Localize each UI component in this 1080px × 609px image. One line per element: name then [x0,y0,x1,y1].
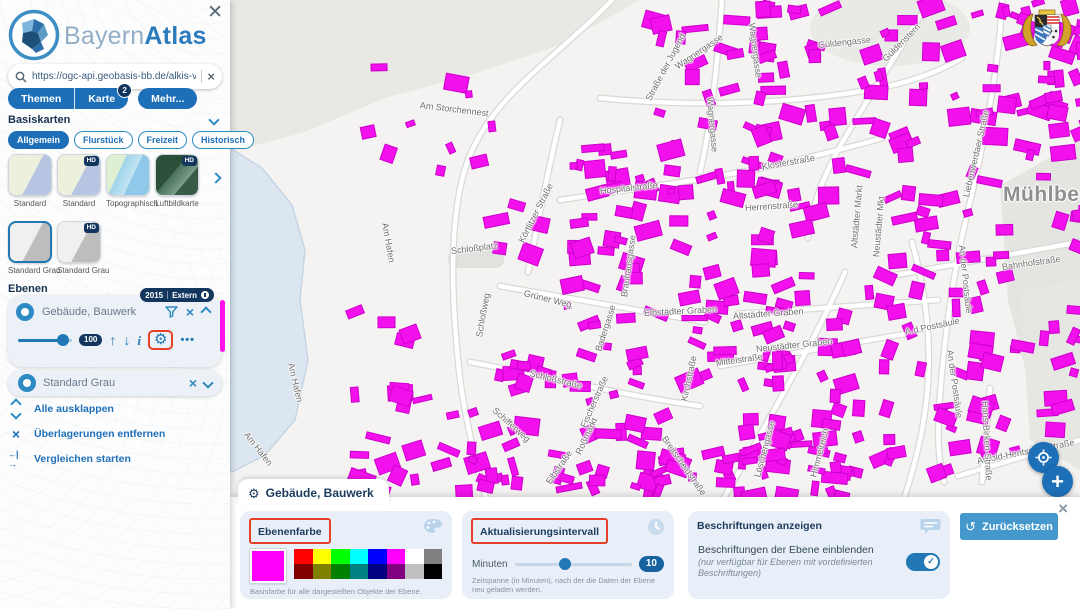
color-swatch[interactable] [294,564,313,579]
intervall-highlight: Aktualisierungsintervall [471,518,608,544]
labels-note: (nur verfügbar für Ebenen mit vordefinie… [698,557,898,580]
labels-text: Beschriftungen der Ebene einblenden [698,544,898,556]
color-swatch[interactable] [350,564,369,579]
layer-settings-gear-icon[interactable]: ⚙ [154,331,167,348]
layer-visibility-icon[interactable] [16,303,34,321]
color-swatch-area [240,544,452,583]
settings-panel-tab[interactable]: ⚙ Gebäude, Bauwerk [238,479,389,504]
basemap-label: Standard [57,199,101,208]
labels-card: Beschriftungen anzeigen Beschriftungen d… [688,511,950,599]
zoom-in-button[interactable]: + [1042,466,1073,497]
compare-icon: ←|→ [8,449,24,469]
layer-name: Standard Grau [43,377,182,389]
color-swatch[interactable] [424,549,443,564]
chip-allgemein[interactable]: Allgemein [8,131,69,149]
remove-icon: × [8,426,24,442]
unfold-icon [8,400,24,418]
interval-slider-handle[interactable] [559,558,571,570]
remove-overlays-link[interactable]: × Überlagerungen entfernen [8,424,165,444]
interval-unit-label: Minuten [472,559,508,570]
toggle-check-icon: ✓ [924,555,938,569]
settings-gear-icon: ⚙ [248,487,260,500]
opacity-value-badge: 100 [79,334,102,346]
interval-caption: Zeitspanne (in Minuten), nach der die Da… [462,572,674,595]
geolocate-icon [1035,449,1052,466]
hd-badge: HD [84,223,99,233]
speech-bubble-icon [920,518,941,535]
search-clear-icon[interactable]: × [207,70,215,83]
palette-icon [423,518,443,534]
layer-collapse-icon[interactable] [200,306,211,317]
basiskarten-heading: Basiskarten [8,114,70,126]
basemap-standard-grau-preview [8,221,52,263]
search-divider [201,70,202,83]
layer-expand-icon[interactable] [202,377,213,388]
reset-label: Zurücksetzen [982,521,1053,533]
search-input[interactable]: https://ogc-api.geobasis-bb.de/alkis-ver… [32,71,196,82]
settings-tab-title: Gebäude, Bauwerk [266,486,374,500]
color-swatch[interactable] [405,549,424,564]
color-swatch[interactable] [331,549,350,564]
clock-icon [647,518,665,536]
layer-color-strip [220,300,225,352]
basemap-standard-hd[interactable]: HD Standard [57,154,101,208]
move-layer-up-icon[interactable]: ↑ [109,333,116,347]
basemap-topographisch-preview [106,154,150,196]
layer-card-gebaeude: 2015 Extern Gebäude, Bauwerk × 100 ↑ ↓ i… [8,295,222,367]
settings-close-icon[interactable]: × [1058,500,1068,517]
layer-name: Gebäude, Bauwerk [42,306,157,318]
intervall-title: Aktualisierungsintervall [480,526,599,538]
chip-freizeit[interactable]: Freizeit [138,131,188,149]
color-swatch[interactable] [424,564,443,579]
bavaria-coat-of-arms [1018,8,1076,50]
layer-info-icon[interactable]: i [137,334,141,347]
color-palette-grid [294,549,442,579]
labels-body: Beschriftungen der Ebene einblenden (nur… [688,535,950,580]
basiskarten-collapse-icon[interactable] [208,114,219,125]
start-compare-link[interactable]: ←|→ Vergleichen starten [8,449,131,469]
layer-more-options-icon[interactable]: ••• [180,334,195,346]
basemap-standard-grau[interactable]: Standard Grau [8,221,52,275]
color-swatch[interactable] [313,564,332,579]
hd-badge: HD [182,156,197,166]
remove-overlays-label: Überlagerungen entfernen [34,428,165,440]
map-hill-area [230,0,640,152]
app-title: BayernAtlas [64,22,207,51]
color-swatch[interactable] [387,564,406,579]
basemap-thumbnails-row1: Standard HD Standard Topographisch HD Lu… [8,154,199,208]
main-tabs: Themen Karte 2 Mehr... [8,88,197,109]
sidebar-close-icon[interactable]: ✕ [207,3,223,22]
basemap-standard-grau-hd[interactable]: HD Standard Grau [57,221,101,275]
layer-color-card: Ebenenfarbe Basisfarbe für alle dargeste… [240,511,452,599]
basemap-standard[interactable]: Standard [8,154,52,208]
ebenenfarbe-title: Ebenenfarbe [258,526,322,538]
expand-all-link[interactable]: Alle ausklappen [8,399,114,419]
basemap-label: Luftbildkarte [155,199,199,208]
color-swatch[interactable] [294,549,313,564]
selected-color-swatch[interactable] [250,549,286,583]
chip-historisch[interactable]: Historisch [192,131,254,149]
start-compare-label: Vergleichen starten [34,453,131,465]
filter-icon[interactable] [165,306,178,318]
reset-button[interactable]: ↺ Zurücksetzen [960,513,1058,540]
reset-icon: ↺ [965,520,976,533]
layer-year-badge: 2015 [145,291,163,300]
color-swatch[interactable] [350,549,369,564]
opacity-slider[interactable] [18,339,72,342]
basemap-label: Standard Grau [8,266,52,275]
basemap-category-chips: Allgemein Flurstück Freizeit Historisch [8,131,254,149]
color-swatch[interactable] [313,549,332,564]
basemap-standard-preview [8,154,52,196]
extern-info-icon[interactable] [201,291,209,299]
color-swatch[interactable] [368,564,387,579]
basemap-luftbildkarte[interactable]: HD Luftbildkarte [155,154,199,208]
sidebar-panel: ✕ BayernAtlas https://ogc-api.geobasis-b… [0,0,230,609]
search-bar[interactable]: https://ogc-api.geobasis-bb.de/alkis-ver… [8,64,222,89]
tab-mehr[interactable]: Mehr... [138,88,197,109]
interval-value-badge: 10 [639,556,664,572]
labels-title: Beschriftungen anzeigen [697,518,822,534]
color-swatch[interactable] [405,564,424,579]
layer-extern-badge: Extern [172,291,197,300]
app-title-atlas: Atlas [144,22,206,50]
map-water [230,148,308,472]
search-icon [15,71,27,83]
layer-settings-panel: ⚙ Gebäude, Bauwerk × Ebenenfarbe Basisfa… [230,497,1080,609]
expand-all-label: Alle ausklappen [34,403,114,415]
app-title-bayern: Bayern [64,22,144,50]
layer-meta-badge: 2015 Extern [140,288,214,302]
badge-divider [167,291,168,299]
layer-card-standard-grau: Standard Grau × [8,370,222,396]
tab-karte-label: Karte [88,93,115,105]
layer-visibility-icon[interactable] [18,374,36,392]
move-layer-down-icon[interactable]: ↓ [123,333,130,347]
color-swatch[interactable] [331,564,350,579]
interval-slider-row: Minuten 10 [462,544,674,572]
layer-remove-icon[interactable]: × [186,305,194,319]
opacity-slider-handle[interactable] [57,334,69,346]
refresh-interval-card: Aktualisierungsintervall Minuten 10 Zeit… [462,511,674,599]
plus-icon: + [1051,471,1064,493]
basemap-label: Standard [8,199,52,208]
basemap-label: Standard Grau [57,266,101,275]
street-label: Mühlberg [1003,183,1080,207]
color-caption: Basisfarbe für alle dargestellten Objekt… [240,583,452,596]
color-swatch[interactable] [368,549,387,564]
color-swatch[interactable] [387,549,406,564]
hd-badge: HD [84,156,99,166]
bayernatlas-logo [8,9,60,61]
labels-toggle[interactable]: ✓ [906,553,940,571]
ebenenfarbe-highlight: Ebenenfarbe [249,518,331,544]
layer-settings-highlight: ⚙ [148,330,173,350]
chip-flurstueck[interactable]: Flurstück [74,131,133,149]
tab-themen[interactable]: Themen [8,88,74,109]
ebenen-heading: Ebenen [8,283,48,295]
karte-count-badge: 2 [117,83,132,98]
layer-remove-icon[interactable]: × [189,376,197,390]
basemap-label: Topographisch [106,199,150,208]
basemap-thumbnails-row2: Standard Grau HD Standard Grau [8,221,101,275]
basemap-more-icon[interactable] [210,172,221,183]
tab-karte[interactable]: Karte 2 [74,88,128,109]
basemap-topographisch[interactable]: Topographisch [106,154,150,208]
interval-slider[interactable] [515,563,632,566]
